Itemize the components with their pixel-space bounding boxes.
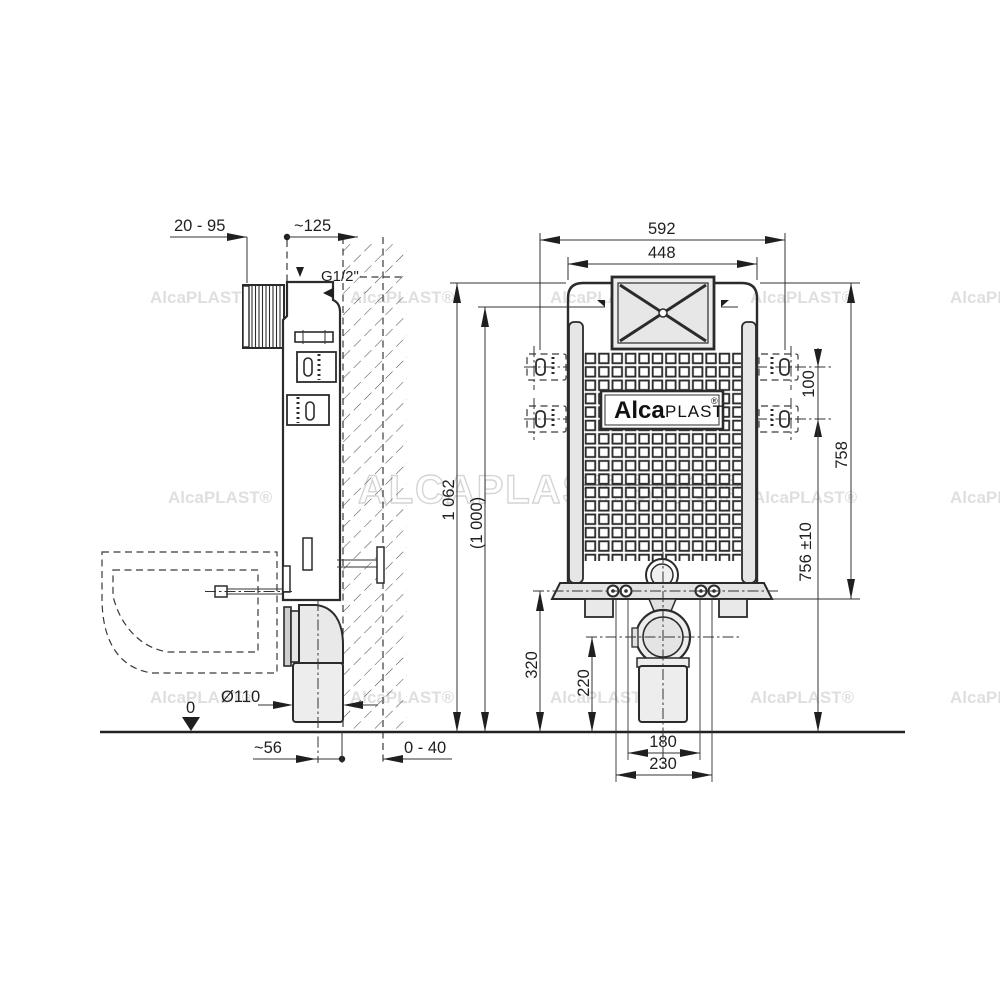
logo-registered-mark: ® <box>711 396 718 406</box>
dim-outlet-height: 220 <box>575 669 593 697</box>
watermark-text: AlcaPLAST® <box>950 488 1000 507</box>
dim-water-connection: G1/2" <box>321 268 359 285</box>
watermark-text: AlcaPLAST® <box>950 688 1000 707</box>
dim-width-outer: 592 <box>648 220 676 238</box>
wc-bowl-outline <box>102 552 277 673</box>
dim-drain-diameter: Ø110 <box>221 688 260 706</box>
dim-floor-level: 0 <box>186 699 195 717</box>
watermark-text: AlcaPLAST® <box>150 288 255 307</box>
drain-outlet-front <box>632 599 690 722</box>
dim-body-height: 758 <box>833 441 851 469</box>
watermark-text: AlcaPLAST® <box>950 288 1000 307</box>
dim-bracket-spacing: 100 <box>800 370 818 398</box>
logo-plate: Alca PLAST ® <box>601 391 724 429</box>
dim-flange-height: 320 <box>523 651 541 679</box>
tank-grid-texture <box>584 352 741 561</box>
dim-height-recommended: (1 000) <box>468 497 486 549</box>
dim-width-inner: 448 <box>648 244 676 262</box>
watermark-text: AlcaPLAST® <box>750 688 855 707</box>
right-foot <box>719 599 747 617</box>
dim-outlet-to-wall: ~56 <box>254 739 282 757</box>
dim-rod-height: 756 ±10 <box>797 522 815 582</box>
technical-drawing-page: AlcaPLAST® AlcaPLAST® AlcaPLAST® AlcaPLA… <box>0 0 1000 1000</box>
watermark-text: AlcaPLAST® <box>753 488 858 507</box>
watermark-text: AlcaPLAST® <box>168 488 273 507</box>
drain-elbow-side <box>284 600 343 763</box>
right-rail <box>742 322 756 583</box>
mounting-rod <box>205 586 292 597</box>
cistern-installation-diagram: AlcaPLAST® AlcaPLAST® AlcaPLAST® AlcaPLA… <box>0 0 1000 1000</box>
dim-depth: ~125 <box>294 217 331 235</box>
dim-height-total: 1 062 <box>440 479 458 520</box>
left-foot <box>585 599 613 617</box>
corrugated-pipe <box>243 285 284 348</box>
dim-wall-finish: 0 - 40 <box>404 739 446 757</box>
dim-bolt-spacing-outer: 230 <box>649 755 677 773</box>
access-panel <box>612 277 714 349</box>
left-rail <box>569 322 583 583</box>
dim-wall-offset: 20 - 95 <box>174 217 225 235</box>
watermark-text: AlcaPLAST® <box>750 288 855 307</box>
logo-alca-text: Alca <box>614 397 665 424</box>
wall-hatch <box>343 244 407 732</box>
dim-bolt-spacing-inner: 180 <box>649 733 677 751</box>
